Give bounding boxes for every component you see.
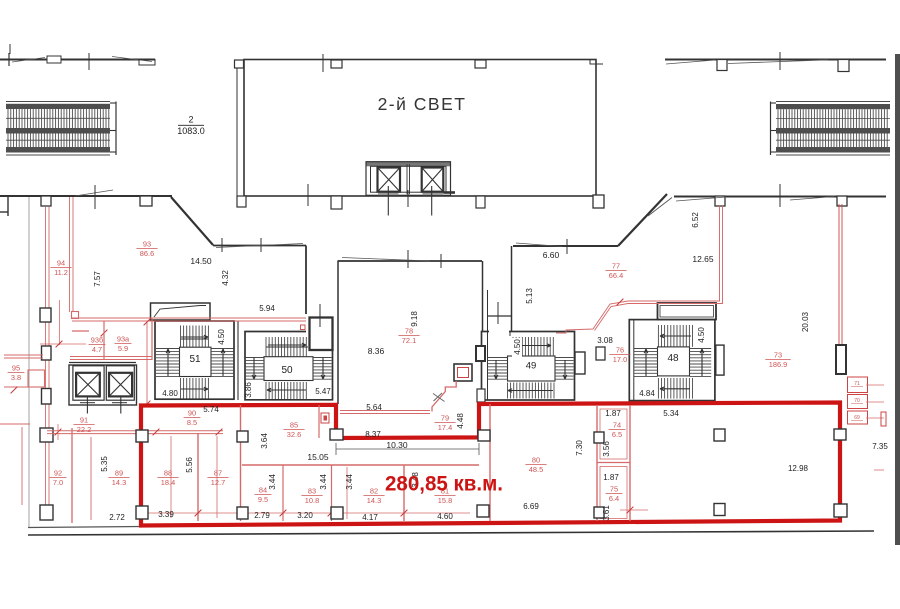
- svg-text:280,85 кв.м.: 280,85 кв.м.: [385, 473, 503, 496]
- svg-text:2.79: 2.79: [254, 511, 270, 520]
- svg-text:90: 90: [188, 409, 196, 418]
- svg-text:48.5: 48.5: [529, 465, 543, 474]
- svg-text:15.05: 15.05: [307, 452, 329, 462]
- svg-text:3.56: 3.56: [602, 441, 611, 457]
- svg-text:5.9: 5.9: [118, 344, 128, 353]
- svg-text:17.0: 17.0: [613, 355, 627, 364]
- svg-text:18.4: 18.4: [161, 478, 175, 487]
- svg-text:5.47: 5.47: [315, 387, 331, 396]
- svg-text:85: 85: [290, 421, 298, 430]
- svg-text:12.7: 12.7: [211, 478, 225, 487]
- svg-text:6.60: 6.60: [543, 250, 560, 260]
- svg-text:72.1: 72.1: [402, 336, 416, 345]
- svg-text:7.35: 7.35: [872, 442, 888, 451]
- svg-text:5.56: 5.56: [185, 457, 194, 473]
- svg-text:94: 94: [57, 259, 65, 268]
- svg-text:1083.0: 1083.0: [177, 126, 205, 136]
- svg-text:14.3: 14.3: [112, 478, 126, 487]
- svg-text:51: 51: [189, 354, 201, 365]
- svg-text:49: 49: [526, 361, 537, 372]
- svg-text:50: 50: [281, 365, 293, 376]
- svg-text:71: 71: [854, 381, 860, 387]
- svg-text:10.8: 10.8: [305, 496, 319, 505]
- svg-text:89: 89: [115, 469, 123, 478]
- svg-text:3.08: 3.08: [597, 336, 613, 345]
- svg-text:93а: 93а: [117, 335, 130, 344]
- svg-text:5.64: 5.64: [366, 403, 382, 412]
- svg-text:76: 76: [616, 346, 624, 355]
- svg-text:2: 2: [188, 115, 193, 125]
- svg-text:2.72: 2.72: [109, 513, 125, 522]
- svg-text:14.50: 14.50: [190, 256, 212, 266]
- svg-text:20.03: 20.03: [801, 311, 810, 332]
- svg-text:6.5: 6.5: [612, 430, 622, 439]
- svg-text:83: 83: [308, 487, 316, 496]
- svg-text:84: 84: [259, 486, 267, 495]
- svg-text:4.60: 4.60: [437, 512, 453, 521]
- svg-text:3.61: 3.61: [602, 505, 611, 521]
- svg-text:95: 95: [12, 364, 20, 373]
- svg-text:11.2: 11.2: [54, 268, 68, 277]
- svg-text:3.86: 3.86: [244, 382, 253, 398]
- svg-text:5.94: 5.94: [259, 304, 275, 313]
- svg-text:9.18: 9.18: [410, 311, 419, 327]
- svg-text:8.5: 8.5: [187, 418, 197, 427]
- svg-text:86.6: 86.6: [140, 249, 154, 258]
- svg-text:12.98: 12.98: [788, 464, 809, 473]
- svg-text:3.64: 3.64: [260, 433, 269, 449]
- svg-text:6.69: 6.69: [523, 502, 539, 511]
- svg-text:70: 70: [854, 398, 860, 404]
- svg-text:91: 91: [80, 416, 88, 425]
- svg-text:32.6: 32.6: [287, 430, 301, 439]
- svg-text:3.39: 3.39: [158, 510, 174, 519]
- svg-text:4.7: 4.7: [92, 345, 102, 354]
- svg-text:2-й СВЕТ: 2-й СВЕТ: [378, 94, 467, 114]
- svg-text:4.50: 4.50: [513, 339, 522, 355]
- svg-text:3.20: 3.20: [297, 511, 313, 520]
- svg-text:6.52: 6.52: [691, 212, 700, 228]
- svg-text:4.50: 4.50: [217, 329, 226, 345]
- svg-text:186.9: 186.9: [769, 360, 788, 369]
- svg-text:4.48: 4.48: [456, 413, 465, 429]
- svg-text:7.30: 7.30: [575, 440, 584, 456]
- svg-text:73: 73: [774, 351, 782, 360]
- svg-text:4.17: 4.17: [362, 513, 378, 522]
- svg-text:4.50: 4.50: [697, 327, 706, 343]
- svg-text:93б: 93б: [91, 336, 103, 345]
- svg-text:87: 87: [214, 469, 222, 478]
- svg-text:74: 74: [613, 421, 621, 430]
- svg-text:12.65: 12.65: [692, 254, 714, 264]
- svg-text:4.80: 4.80: [162, 389, 178, 398]
- svg-text:1.87: 1.87: [603, 473, 619, 482]
- svg-text:5.13: 5.13: [525, 288, 534, 304]
- svg-text:75: 75: [610, 485, 618, 494]
- svg-text:5.74: 5.74: [203, 405, 219, 414]
- svg-text:14.3: 14.3: [367, 496, 381, 505]
- svg-text:8.36: 8.36: [368, 346, 385, 356]
- svg-text:7.0: 7.0: [53, 478, 63, 487]
- svg-text:48: 48: [667, 353, 679, 364]
- svg-text:78: 78: [405, 327, 413, 336]
- svg-text:3.8: 3.8: [11, 373, 21, 382]
- svg-text:93: 93: [143, 240, 151, 249]
- svg-text:69: 69: [854, 415, 860, 421]
- svg-text:22.2: 22.2: [77, 425, 91, 434]
- svg-text:9.5: 9.5: [258, 495, 268, 504]
- svg-text:5.35: 5.35: [100, 456, 109, 472]
- svg-text:82: 82: [370, 487, 378, 496]
- svg-text:77: 77: [612, 262, 620, 271]
- svg-text:88: 88: [164, 469, 172, 478]
- svg-text:15.8: 15.8: [438, 496, 452, 505]
- svg-text:6.4: 6.4: [609, 494, 619, 503]
- svg-text:17.4: 17.4: [438, 423, 452, 432]
- svg-text:1.87: 1.87: [605, 409, 621, 418]
- svg-text:79: 79: [441, 414, 449, 423]
- svg-text:4.32: 4.32: [221, 270, 230, 286]
- svg-text:4.84: 4.84: [639, 389, 655, 398]
- svg-text:8.37: 8.37: [365, 430, 381, 439]
- svg-text:92: 92: [54, 469, 62, 478]
- svg-text:3.44: 3.44: [268, 474, 277, 490]
- svg-text:80: 80: [532, 456, 540, 465]
- svg-text:3.44: 3.44: [345, 474, 354, 490]
- svg-text:5.34: 5.34: [663, 409, 679, 418]
- svg-text:3.44: 3.44: [319, 474, 328, 490]
- svg-text:66.4: 66.4: [609, 271, 623, 280]
- svg-text:7.57: 7.57: [93, 271, 102, 287]
- svg-text:10.30: 10.30: [386, 440, 408, 450]
